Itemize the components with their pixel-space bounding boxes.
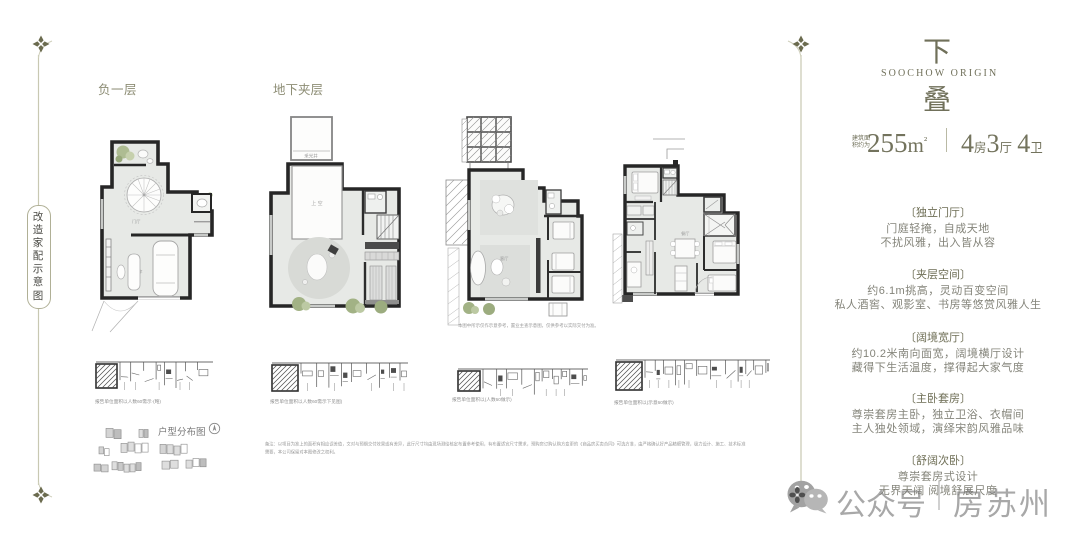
svg-text:餐厅: 餐厅: [681, 230, 689, 237]
svg-text:上 空: 上 空: [311, 200, 322, 207]
svg-text:门厅: 门厅: [132, 218, 140, 225]
svg-text:采光井: 采光井: [304, 153, 318, 160]
